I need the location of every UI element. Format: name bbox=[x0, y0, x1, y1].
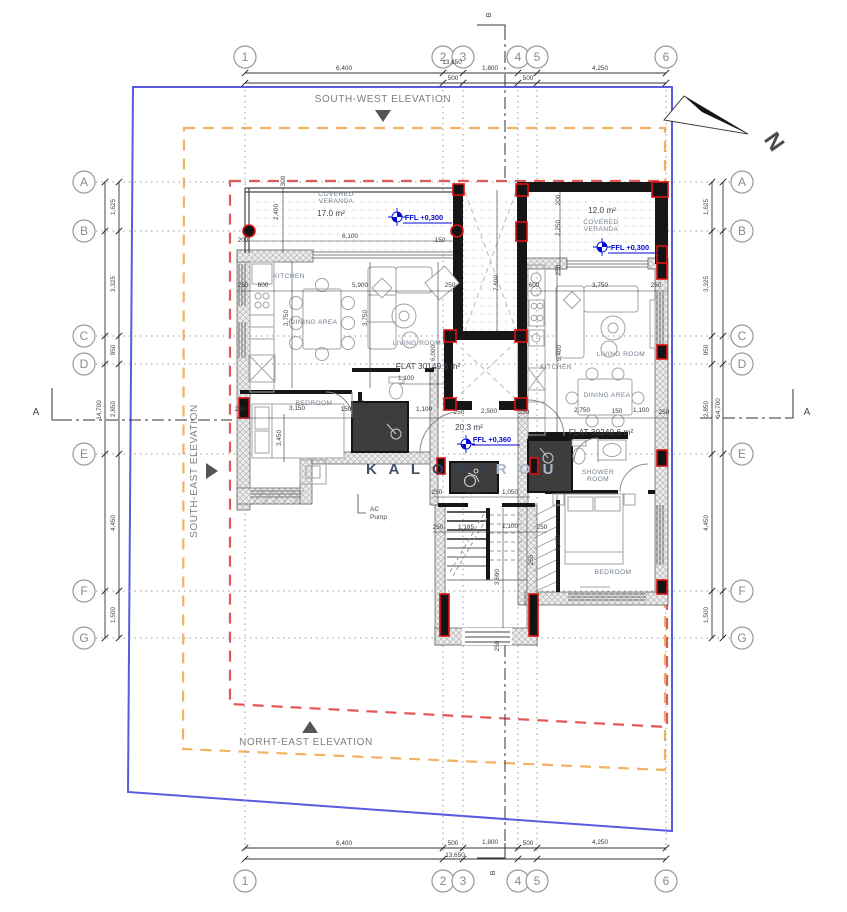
section-b-label-top: B bbox=[484, 12, 493, 17]
dim-label: 13,650 bbox=[442, 59, 462, 66]
svg-text:2: 2 bbox=[440, 874, 447, 888]
dim-label: 250 bbox=[519, 409, 530, 416]
dim-label: 2,500 bbox=[481, 408, 497, 415]
dim-label: 5,400 bbox=[556, 345, 563, 361]
dim-label: 600 bbox=[258, 282, 269, 289]
dim-label: 14,700 bbox=[96, 400, 103, 420]
dim-label: 4,250 bbox=[592, 65, 608, 72]
grid-bubble-5-top: 5 bbox=[526, 46, 548, 68]
room-label: BEDROOM bbox=[595, 569, 632, 576]
grid-bubble-2-bottom: 2 bbox=[432, 870, 454, 892]
ffl-label: FFL +0,300 bbox=[405, 213, 443, 222]
elevation-arrow-north-east bbox=[302, 721, 318, 733]
dim-label: 1,600 bbox=[371, 406, 387, 413]
grid-bubble-E-right: E bbox=[731, 443, 753, 465]
dim-label: 600 bbox=[529, 282, 540, 289]
svg-text:B: B bbox=[80, 224, 88, 238]
dim-label: 4,450 bbox=[703, 515, 710, 531]
room-label: VERANDA bbox=[584, 226, 619, 233]
grid-bubble-A-left: A bbox=[73, 171, 95, 193]
svg-text:C: C bbox=[80, 329, 89, 343]
dim-label: 500 bbox=[523, 75, 534, 82]
sink-right bbox=[598, 440, 626, 460]
dim-label: 3,325 bbox=[703, 276, 710, 292]
dim-label: 6,100 bbox=[342, 233, 358, 240]
svg-text:1: 1 bbox=[242, 874, 249, 888]
grid-bubble-E-left: E bbox=[73, 443, 95, 465]
room-label: KITCHEN bbox=[540, 364, 572, 371]
svg-text:F: F bbox=[738, 584, 745, 598]
svg-text:G: G bbox=[79, 631, 88, 645]
dim-label: 3,325 bbox=[110, 276, 117, 292]
bed-left bbox=[252, 404, 344, 484]
dim-label: 500 bbox=[448, 840, 459, 847]
dim-label: 3,450 bbox=[276, 430, 283, 446]
dim-label: 950 bbox=[110, 344, 117, 355]
grid-bubble-C-right: C bbox=[731, 325, 753, 347]
svg-text:1: 1 bbox=[242, 50, 249, 64]
ffl-label: FFL +0,300 bbox=[611, 243, 649, 252]
elevation-label-south-east: SOUTH-EAST ELEVATION bbox=[189, 404, 200, 538]
grid-bubble-5-bottom: 5 bbox=[526, 870, 548, 892]
grid-bubble-3-bottom: 3 bbox=[452, 870, 474, 892]
room-label: SHOWER bbox=[582, 469, 614, 476]
dim-label: 150 bbox=[341, 406, 352, 413]
floor-plan-drawing: 112233445566AABBCCDDEEFFGG bbox=[0, 0, 847, 912]
elevation-label-south-west: SOUTH-WEST ELEVATION bbox=[315, 94, 451, 105]
dim-label: 5,900 bbox=[352, 282, 368, 289]
dim-label: 1,800 bbox=[482, 65, 498, 72]
svg-text:D: D bbox=[738, 357, 747, 371]
dim-label: 250 bbox=[537, 524, 548, 531]
dim-label: 200 bbox=[238, 237, 249, 244]
area-label: 20.3 m² bbox=[455, 423, 483, 432]
dim-label: 1,625 bbox=[110, 199, 117, 215]
grid-bubble-1-top: 1 bbox=[234, 46, 256, 68]
dim-label: 1,050 bbox=[502, 489, 518, 496]
svg-text:5: 5 bbox=[534, 50, 541, 64]
dim-label: 200 bbox=[555, 194, 562, 205]
grid-bubble-G-left: G bbox=[73, 627, 95, 649]
dim-label: 2,400 bbox=[273, 204, 280, 220]
dim-label: 13,650 bbox=[445, 852, 465, 859]
room-label: LIVING ROOM bbox=[597, 351, 645, 358]
dim-label: 3,750 bbox=[362, 310, 369, 326]
grid-bubble-B-right: B bbox=[731, 220, 753, 242]
room-label: VERANDA bbox=[319, 198, 354, 205]
dim-label: 250 bbox=[494, 640, 501, 651]
svg-text:4: 4 bbox=[515, 50, 522, 64]
room-label: LIVING ROOM bbox=[393, 340, 441, 347]
grid-bubble-D-right: D bbox=[731, 353, 753, 375]
north-arrow: N bbox=[664, 96, 790, 156]
dim-label: 1,500 bbox=[110, 607, 117, 623]
dim-label: 1,625 bbox=[703, 199, 710, 215]
room-label: DINING AREA bbox=[584, 392, 631, 399]
dim-label: 950 bbox=[703, 344, 710, 355]
dim-label: 1,500 bbox=[703, 607, 710, 623]
north-label: N bbox=[759, 127, 790, 156]
dim-label: 1,450 bbox=[466, 489, 482, 496]
ffl-label: FFL +0,360 bbox=[473, 435, 511, 444]
section-line-a bbox=[52, 388, 793, 420]
area-label: 17.0 m² bbox=[317, 209, 345, 218]
dim-label: 4,450 bbox=[110, 515, 117, 531]
svg-text:3: 3 bbox=[460, 874, 467, 888]
dim-label: 2,750 bbox=[574, 407, 590, 414]
room-label: BEDROOM bbox=[296, 400, 333, 407]
dim-label: 7,600 bbox=[493, 275, 500, 291]
dim-label: 3,750 bbox=[283, 310, 290, 326]
section-a-label-right: A bbox=[804, 407, 811, 418]
area-label: 12.0 m² bbox=[588, 206, 616, 215]
dim-label: 4,250 bbox=[592, 839, 608, 846]
svg-text:4: 4 bbox=[515, 874, 522, 888]
dim-label: 6,000 bbox=[430, 345, 437, 361]
dim-label: 2,100 bbox=[359, 400, 366, 416]
grid-bubble-6-bottom: 6 bbox=[655, 870, 677, 892]
dim-label: 1,800 bbox=[482, 839, 498, 846]
svg-text:D: D bbox=[80, 357, 89, 371]
dim-label: 150 bbox=[612, 408, 623, 415]
dim-label: 3,690 bbox=[494, 569, 501, 585]
dim-label: 6,400 bbox=[336, 65, 352, 72]
svg-text:F: F bbox=[80, 584, 87, 598]
dim-label: 3,750 bbox=[592, 282, 608, 289]
dim-label: 500 bbox=[523, 840, 534, 847]
dim-label: 150 bbox=[435, 237, 446, 244]
dim-label: 6,400 bbox=[336, 840, 352, 847]
dim-label: 1,100 bbox=[398, 375, 414, 382]
grid-bubble-D-left: D bbox=[73, 353, 95, 375]
dim-label: 250 bbox=[445, 282, 456, 289]
dim-label: 300 bbox=[280, 175, 287, 186]
room-label: ROOM bbox=[587, 476, 609, 483]
svg-text:6: 6 bbox=[663, 874, 670, 888]
svg-text:AC: AC bbox=[370, 506, 379, 513]
watermark: K A L O G IR O U bbox=[366, 461, 557, 478]
dim-label: 250 bbox=[528, 554, 535, 565]
dim-label: 250 bbox=[659, 409, 670, 416]
svg-text:Pump: Pump bbox=[370, 514, 387, 521]
ac-pump-note: AC Pump bbox=[358, 494, 387, 521]
dim-label: 250 bbox=[432, 489, 443, 496]
room-label: COVERED bbox=[318, 191, 353, 198]
dim-label: 14,700 bbox=[715, 398, 722, 418]
room-label: DINING AREA bbox=[291, 319, 338, 326]
dim-label: 250 bbox=[235, 406, 246, 413]
svg-text:G: G bbox=[737, 631, 746, 645]
svg-text:C: C bbox=[738, 329, 747, 343]
svg-text:A: A bbox=[80, 175, 88, 189]
grid-bubble-C-left: C bbox=[73, 325, 95, 347]
grid-bubble-6-top: 6 bbox=[655, 46, 677, 68]
dim-label: 250 bbox=[433, 524, 444, 531]
grid-bubble-G-right: G bbox=[731, 627, 753, 649]
room-label: KITCHEN bbox=[273, 273, 305, 280]
grid-bubble-F-right: F bbox=[731, 580, 753, 602]
flat-label: FLAT 30149.6 m² bbox=[396, 361, 461, 371]
dim-label: 250 bbox=[454, 409, 465, 416]
room-label: COVERED bbox=[583, 219, 618, 226]
section-b-label-bottom: B bbox=[488, 870, 497, 875]
sofa-right bbox=[556, 286, 655, 358]
svg-text:6: 6 bbox=[663, 50, 670, 64]
svg-text:B: B bbox=[738, 224, 746, 238]
svg-text:A: A bbox=[738, 175, 746, 189]
elevation-arrow-south-west bbox=[375, 110, 391, 122]
dim-label: 1,185 bbox=[458, 524, 474, 531]
svg-text:E: E bbox=[80, 447, 88, 461]
svg-text:E: E bbox=[738, 447, 746, 461]
grid-bubble-B-left: B bbox=[73, 220, 95, 242]
dim-label: 150 bbox=[392, 406, 403, 413]
dim-label: 2,250 bbox=[555, 220, 562, 236]
elevation-arrow-south-east bbox=[206, 463, 218, 479]
dim-label: 250 bbox=[651, 282, 662, 289]
dim-label: 2,850 bbox=[110, 401, 117, 417]
dim-label: 500 bbox=[448, 75, 459, 82]
dim-label: 1,100 bbox=[633, 407, 649, 414]
dim-label: 250 bbox=[238, 282, 249, 289]
elevation-label-north-east: NORHT-EAST ELEVATION bbox=[239, 737, 373, 748]
floor-plan-canvas: 112233445566AABBCCDDEEFFGG bbox=[0, 0, 847, 912]
dim-label: 2,850 bbox=[703, 401, 710, 417]
grid-bubble-A-right: A bbox=[731, 171, 753, 193]
section-a-label-left: A bbox=[33, 407, 40, 418]
grid-bubble-1-bottom: 1 bbox=[234, 870, 256, 892]
dim-label: 250 bbox=[555, 264, 562, 275]
dim-label: 1,100 bbox=[502, 523, 518, 530]
dim-label: 3,100 bbox=[555, 535, 562, 551]
flat-label: FLAT 30249.6 m² bbox=[569, 427, 634, 437]
svg-text:5: 5 bbox=[534, 874, 541, 888]
grid-bubble-F-left: F bbox=[73, 580, 95, 602]
dim-label: 1,100 bbox=[416, 406, 432, 413]
